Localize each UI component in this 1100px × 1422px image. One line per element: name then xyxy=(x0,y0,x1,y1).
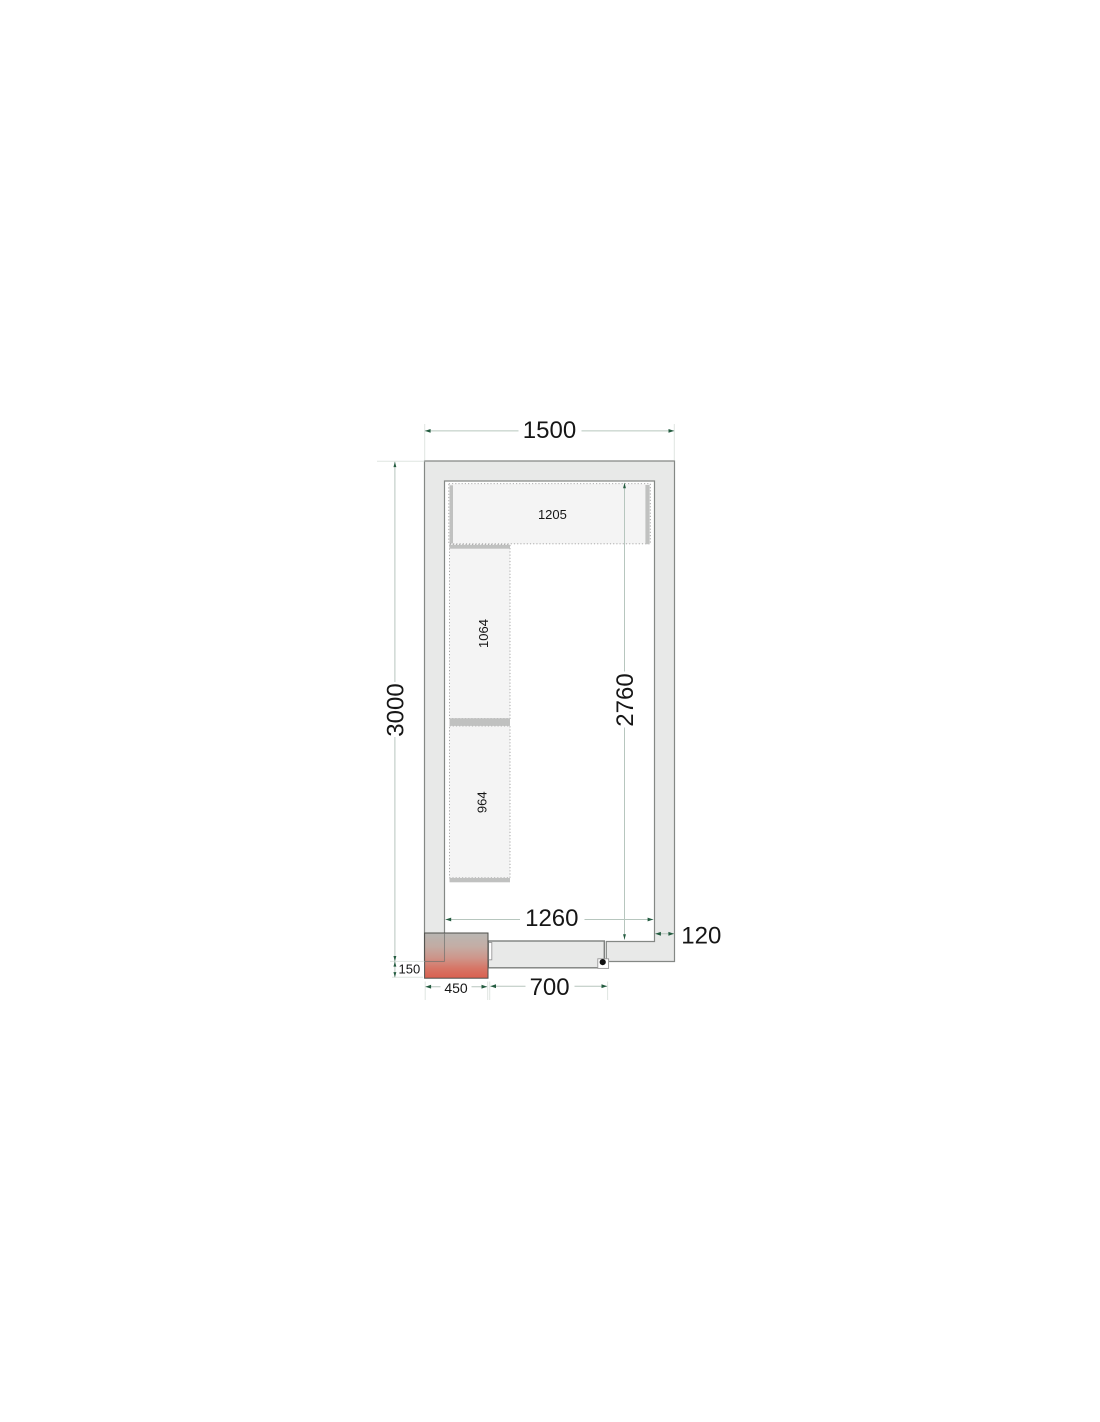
svg-text:964: 964 xyxy=(474,791,489,813)
svg-text:120: 120 xyxy=(681,923,721,950)
svg-text:1064: 1064 xyxy=(476,619,491,648)
svg-text:450: 450 xyxy=(444,980,468,996)
svg-text:1260: 1260 xyxy=(525,905,578,932)
svg-text:2760: 2760 xyxy=(612,673,639,726)
svg-text:150: 150 xyxy=(399,962,421,977)
svg-text:3000: 3000 xyxy=(383,683,410,736)
svg-text:1500: 1500 xyxy=(523,417,576,444)
svg-text:1205: 1205 xyxy=(538,507,567,522)
svg-text:700: 700 xyxy=(530,974,570,1001)
